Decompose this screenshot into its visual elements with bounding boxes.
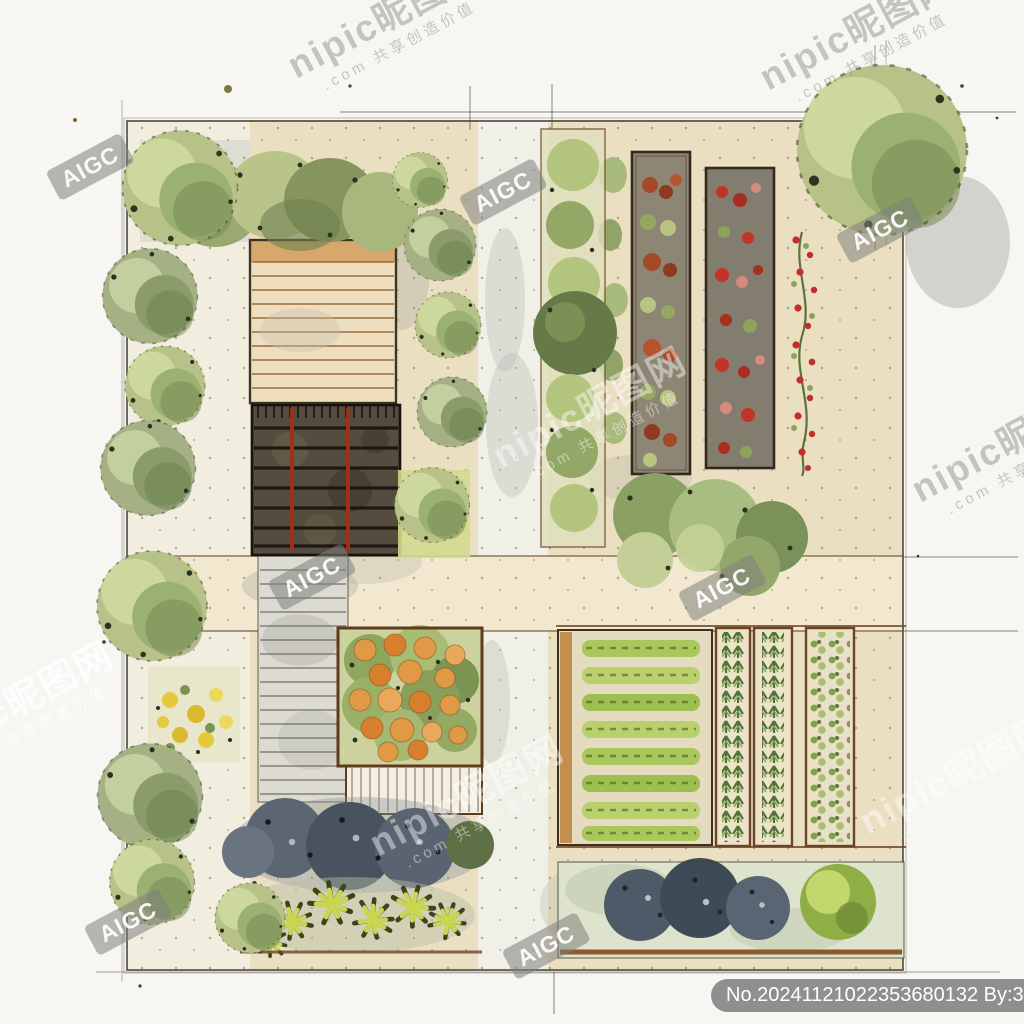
stone-path <box>258 556 348 802</box>
ivy-bed <box>806 628 854 846</box>
orange-tree-bed <box>338 625 482 766</box>
lettuce-bed <box>558 630 712 845</box>
pergola-structure <box>252 405 400 555</box>
fern-beds <box>716 628 792 846</box>
center-plant-column <box>533 129 617 547</box>
stock-image-canvas: nipic昵图网 .com 共享创造价值 nipic昵图网 .com 共享创造价… <box>0 0 1024 1024</box>
deck-structure <box>250 240 396 403</box>
raised-bed-strawberries <box>632 152 690 474</box>
image-id-badge: No.20241121022353680132 By:35479210 <box>711 979 1024 1012</box>
garden-plan-drawing <box>0 0 1024 1024</box>
bottom-right-shrub-bed <box>558 858 904 958</box>
raised-bed-tomatoes <box>706 168 774 468</box>
